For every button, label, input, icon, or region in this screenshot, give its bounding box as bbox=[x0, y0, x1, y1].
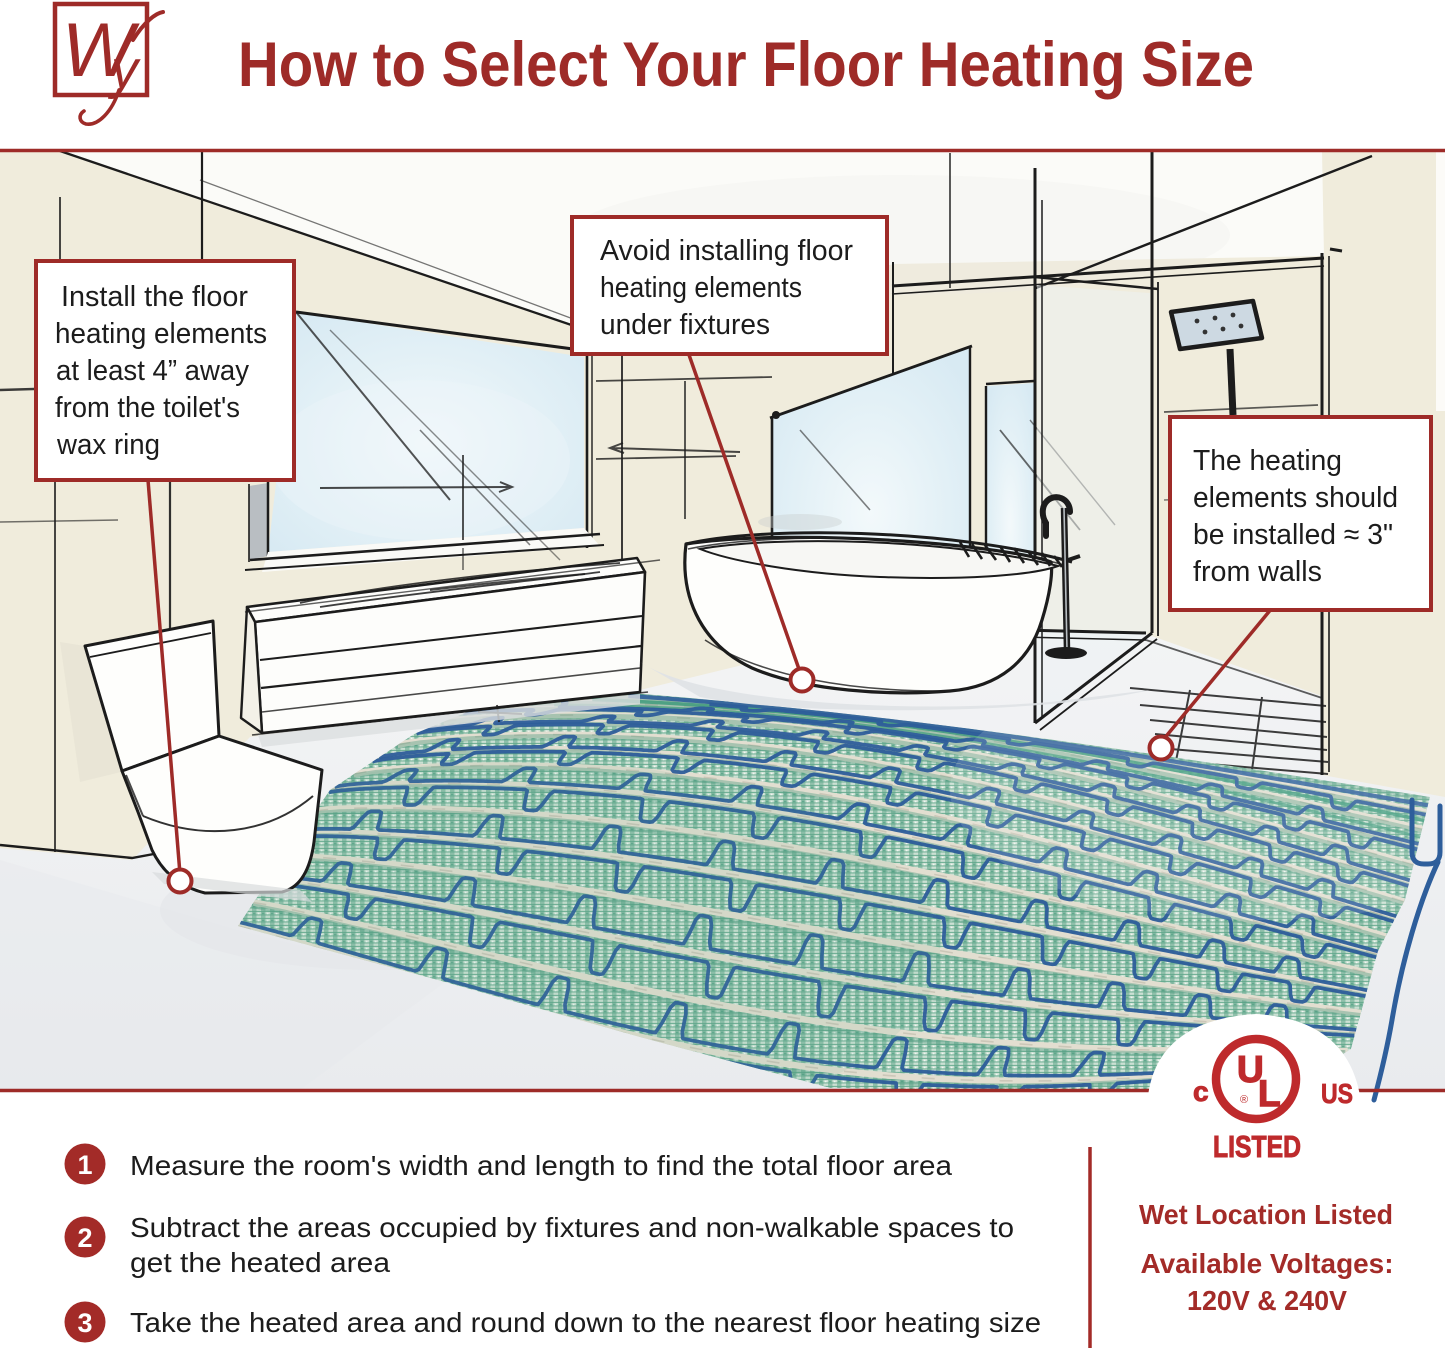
svg-text:be installed ≈ 3": be installed ≈ 3" bbox=[1193, 519, 1393, 551]
svg-text:®: ® bbox=[1240, 1094, 1248, 1106]
svg-text:from the toilet's: from the toilet's bbox=[55, 392, 240, 424]
svg-text:3: 3 bbox=[77, 1308, 92, 1338]
svg-text:get the heated area: get the heated area bbox=[130, 1247, 391, 1278]
svg-text:US: US bbox=[1321, 1078, 1353, 1109]
svg-text:How to Select Your Floor Heati: How to Select Your Floor Heating Size bbox=[238, 30, 1254, 100]
svg-text:Measure the room's width and l: Measure the room's width and length to f… bbox=[130, 1150, 953, 1181]
svg-text:from walls: from walls bbox=[1193, 556, 1322, 588]
svg-text:wax ring: wax ring bbox=[56, 429, 160, 461]
svg-text:c: c bbox=[1193, 1076, 1209, 1107]
svg-text:120V & 240V: 120V & 240V bbox=[1187, 1285, 1347, 1316]
svg-text:The heating: The heating bbox=[1193, 445, 1342, 477]
svg-text:elements should: elements should bbox=[1193, 482, 1398, 514]
svg-text:L: L bbox=[1258, 1073, 1281, 1114]
svg-text:under fixtures: under fixtures bbox=[600, 309, 770, 341]
svg-text:heating elements: heating elements bbox=[55, 318, 267, 350]
svg-text:heating elements: heating elements bbox=[600, 272, 802, 304]
svg-text:2: 2 bbox=[77, 1223, 92, 1253]
svg-text:Take the heated area and round: Take the heated area and round down to t… bbox=[130, 1307, 1041, 1338]
svg-text:at least 4” away: at least 4” away bbox=[56, 355, 249, 387]
svg-text:LISTED: LISTED bbox=[1213, 1129, 1301, 1164]
svg-text:y: y bbox=[107, 40, 141, 100]
svg-text:Avoid installing floor: Avoid installing floor bbox=[600, 235, 853, 267]
svg-text:Available Voltages:: Available Voltages: bbox=[1141, 1248, 1394, 1279]
svg-text:1: 1 bbox=[77, 1150, 92, 1180]
svg-text:Subtract the areas occupied by: Subtract the areas occupied by fixtures … bbox=[130, 1212, 1014, 1243]
svg-text:Wet Location Listed: Wet Location Listed bbox=[1139, 1199, 1393, 1230]
svg-text:Install the floor: Install the floor bbox=[61, 281, 248, 313]
